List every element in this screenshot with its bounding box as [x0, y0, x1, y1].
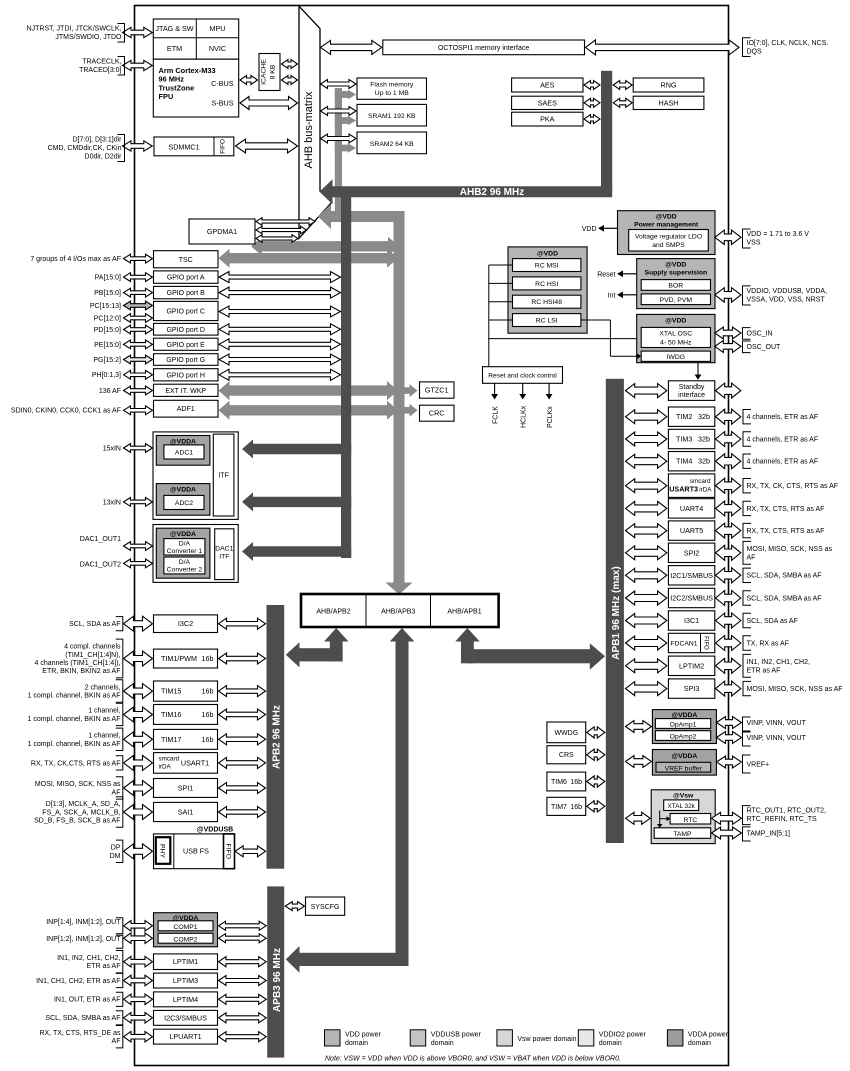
svg-text:VDDA power: VDDA power — [688, 1032, 729, 1039]
svg-text:SCL, SDA, SMBA as AF: SCL, SDA, SMBA as AF — [747, 573, 822, 580]
svg-text:2 channels,: 2 channels, — [85, 684, 121, 691]
svg-text:OSC_IN: OSC_IN — [747, 330, 773, 337]
svg-text:Up to 1 MB: Up to 1 MB — [375, 90, 409, 97]
svg-text:SPI1: SPI1 — [178, 784, 194, 793]
svg-text:SCL, SDA as AF: SCL, SDA as AF — [747, 618, 798, 625]
svg-text:SD_B, FS_B, SCK_B as AF: SD_B, FS_B, SCK_B as AF — [34, 818, 120, 825]
svg-text:ETR, BKIN, BKIN2 as AF: ETR, BKIN, BKIN2 as AF — [42, 668, 120, 675]
svg-text:VSS: VSS — [747, 240, 761, 247]
svg-text:VINP, VINN, VOUT: VINP, VINN, VOUT — [747, 735, 807, 742]
svg-text:XTAL OSC: XTAL OSC — [659, 330, 692, 337]
svg-text:VREF buffer: VREF buffer — [665, 765, 703, 772]
svg-text:GPIO port G: GPIO port G — [166, 357, 205, 364]
svg-text:@VDD: @VDD — [537, 250, 558, 257]
svg-text:Note: VSW = VDD when VDD is a: Note: VSW = VDD when VDD is above VBOR0,… — [325, 1056, 621, 1063]
svg-text:EXT IT. WKP: EXT IT. WKP — [165, 388, 206, 395]
svg-text:interface: interface — [678, 392, 705, 399]
svg-text:DAC1_OUT2: DAC1_OUT2 — [80, 562, 121, 569]
svg-text:SPI3: SPI3 — [684, 684, 700, 693]
svg-text:VREF+: VREF+ — [747, 761, 770, 768]
svg-text:WWDG: WWDG — [554, 730, 578, 737]
svg-text:4 compl. channels: 4 compl. channels — [64, 644, 121, 651]
svg-text:USART3: USART3 — [669, 485, 698, 494]
svg-text:15xIN: 15xIN — [103, 445, 121, 452]
svg-text:AHB/APB2: AHB/APB2 — [316, 609, 350, 616]
svg-text:PA[15:0]: PA[15:0] — [95, 275, 121, 282]
svg-text:Standby: Standby — [679, 384, 705, 391]
svg-text:VINP, VINN, VOUT: VINP, VINN, VOUT — [747, 720, 807, 727]
svg-text:13xIN: 13xIN — [103, 499, 121, 506]
svg-text:16b: 16b — [202, 735, 214, 744]
svg-text:SDIN0, CKIN0, CCK0, CCK1 as AF: SDIN0, CKIN0, CCK0, CCK1 as AF — [11, 408, 121, 415]
svg-text:RC MSI: RC MSI — [535, 263, 559, 270]
svg-text:RX, TX, CTS, RTS as AF: RX, TX, CTS, RTS as AF — [747, 528, 825, 535]
svg-text:TIM1/PWM: TIM1/PWM — [161, 654, 197, 663]
svg-text:136 AF: 136 AF — [99, 388, 121, 395]
svg-text:FIFO: FIFO — [703, 636, 709, 650]
svg-text:D[7:0], D[3:1]dir: D[7:0], D[3:1]dir — [72, 137, 122, 144]
svg-text:JTAG & SW: JTAG & SW — [155, 24, 193, 33]
svg-text:DAC1: DAC1 — [215, 546, 233, 553]
svg-text:SPI2: SPI2 — [684, 548, 700, 557]
svg-text:LPTIM3: LPTIM3 — [173, 976, 198, 985]
svg-text:TIM7: TIM7 — [551, 804, 567, 811]
svg-text:IN1, CH1, CH2, ETR as AF: IN1, CH1, CH2, ETR as AF — [36, 978, 120, 985]
svg-text:AF: AF — [747, 554, 756, 561]
svg-text:1 compl. channel, BKIN as AF: 1 compl. channel, BKIN as AF — [28, 741, 121, 748]
svg-text:BOR: BOR — [668, 283, 683, 290]
svg-text:PB[15:0]: PB[15:0] — [94, 290, 121, 297]
svg-text:AHB/APB3: AHB/APB3 — [381, 609, 415, 616]
svg-text:Reset: Reset — [597, 271, 615, 278]
svg-text:irDA: irDA — [699, 487, 712, 494]
svg-text:PC[15:13]: PC[15:13] — [90, 303, 121, 310]
svg-text:RC HSI: RC HSI — [535, 281, 558, 288]
svg-text:irDA: irDA — [159, 764, 172, 771]
svg-text:TrustZone: TrustZone — [159, 83, 195, 92]
svg-text:TIM4: TIM4 — [676, 457, 692, 466]
svg-text:16b: 16b — [570, 804, 582, 811]
svg-text:VDDUSB power: VDDUSB power — [431, 1032, 482, 1039]
svg-text:NVIC: NVIC — [209, 44, 226, 53]
svg-text:domain: domain — [345, 1040, 368, 1047]
svg-text:PH[0:1,3]: PH[0:1,3] — [92, 372, 121, 379]
svg-text:DM: DM — [110, 853, 121, 860]
svg-text:RTC_OUT1, RTC_OUT2,: RTC_OUT1, RTC_OUT2, — [747, 808, 827, 815]
svg-text:VSSA, VDD, VSS, NRST: VSSA, VDD, VSS, NRST — [747, 297, 826, 304]
svg-text:TIM3: TIM3 — [676, 435, 692, 444]
svg-text:RNG: RNG — [661, 81, 677, 90]
svg-text:GPIO port E: GPIO port E — [167, 342, 205, 349]
svg-text:@VDDA: @VDDA — [170, 438, 196, 445]
svg-text:RTC_REFIN, RTC_TS: RTC_REFIN, RTC_TS — [747, 816, 817, 823]
svg-text:GPIO port A: GPIO port A — [167, 275, 205, 282]
svg-text:SDMMC1: SDMMC1 — [168, 143, 199, 152]
svg-text:SCL, SDA, SMBA as AF: SCL, SDA, SMBA as AF — [747, 595, 822, 602]
svg-text:PCLKx: PCLKx — [547, 406, 554, 428]
svg-text:DQS: DQS — [747, 48, 763, 55]
svg-text:FDCAN1: FDCAN1 — [670, 641, 697, 648]
svg-text:domain: domain — [599, 1040, 622, 1047]
svg-text:PVD, PVM: PVD, PVM — [660, 297, 693, 304]
svg-text:4 channels, ETR as AF: 4 channels, ETR as AF — [747, 436, 819, 443]
svg-text:TAMP_IN[5:1]: TAMP_IN[5:1] — [747, 830, 790, 837]
svg-text:IN1, OUT, ETR as AF: IN1, OUT, ETR as AF — [54, 997, 121, 1004]
svg-text:SRAM1 192 KB: SRAM1 192 KB — [368, 113, 416, 120]
svg-text:AF: AF — [112, 789, 121, 796]
svg-text:PC[12:0]: PC[12:0] — [94, 315, 121, 322]
svg-text:@VDD: @VDD — [665, 318, 686, 325]
svg-text:I3C1: I3C1 — [684, 616, 699, 625]
svg-text:TSC: TSC — [179, 257, 193, 264]
svg-text:RTC: RTC — [683, 817, 697, 824]
svg-text:SYSCFG: SYSCFG — [311, 904, 340, 911]
svg-text:LPTIM2: LPTIM2 — [679, 661, 704, 670]
svg-text:RX, TX, CTS, RTS as AF: RX, TX, CTS, RTS as AF — [747, 506, 825, 513]
svg-text:8 KB: 8 KB — [270, 64, 277, 79]
svg-text:4 channels (TIM1_CH[1:4]),: 4 channels (TIM1_CH[1:4]), — [35, 660, 121, 667]
svg-text:and SMPS: and SMPS — [652, 242, 685, 249]
svg-text:@VDD: @VDD — [656, 214, 677, 221]
svg-text:GPIO port D: GPIO port D — [166, 327, 205, 334]
svg-text:96 MHz: 96 MHz — [159, 75, 185, 84]
svg-text:RX, TX, CK,CTS, RTS as AF: RX, TX, CK,CTS, RTS as AF — [31, 760, 121, 767]
svg-text:COMP1: COMP1 — [173, 924, 197, 931]
svg-text:ETR as AF: ETR as AF — [747, 667, 781, 674]
svg-text:I3C2: I3C2 — [178, 619, 193, 628]
svg-text:32b: 32b — [698, 457, 710, 466]
svg-text:1 compl. channel, BKIN as AF: 1 compl. channel, BKIN as AF — [28, 693, 121, 700]
svg-text:UART5: UART5 — [680, 526, 703, 535]
svg-text:PKA: PKA — [540, 115, 555, 124]
svg-text:Arm Cortex-M33: Arm Cortex-M33 — [159, 66, 216, 75]
svg-text:PD[15:0]: PD[15:0] — [94, 327, 121, 334]
svg-text:GPIO port B: GPIO port B — [167, 290, 205, 297]
svg-text:VDD = 1.71 to 3.6 V: VDD = 1.71 to 3.6 V — [747, 231, 810, 238]
svg-text:ADF1: ADF1 — [177, 406, 195, 413]
svg-text:DAC1_OUT1: DAC1_OUT1 — [80, 536, 121, 543]
svg-text:I2C2/SMBUS: I2C2/SMBUS — [670, 594, 713, 603]
svg-text:AHB bus-matrix: AHB bus-matrix — [303, 91, 315, 169]
svg-text:JTMS/SWDIO, JTDO: JTMS/SWDIO, JTDO — [55, 34, 122, 41]
svg-text:ADC1: ADC1 — [175, 450, 193, 457]
svg-text:Vsw power domain: Vsw power domain — [517, 1036, 576, 1043]
svg-text:GPDMA1: GPDMA1 — [207, 227, 237, 236]
svg-text:SRAM2 64 KB: SRAM2 64 KB — [370, 141, 414, 148]
svg-text:Int: Int — [608, 292, 616, 299]
svg-text:APB2 96 MHz: APB2 96 MHz — [272, 705, 283, 769]
svg-text:1 channel,: 1 channel, — [88, 733, 120, 740]
svg-text:4 channels, ETR as AF: 4 channels, ETR as AF — [747, 414, 819, 421]
svg-text:IN1, IN2, CH1, CH2,: IN1, IN2, CH1, CH2, — [747, 659, 810, 666]
svg-text:Reset and clock control: Reset and clock control — [488, 373, 557, 380]
svg-text:FCLK: FCLK — [493, 406, 500, 424]
svg-text:MPU: MPU — [210, 24, 226, 33]
svg-text:LPTIM1: LPTIM1 — [173, 957, 198, 966]
svg-text:@VDDA: @VDDA — [170, 531, 196, 538]
svg-text:1 channel,: 1 channel, — [88, 708, 120, 715]
svg-text:@VDD: @VDD — [665, 262, 686, 269]
svg-text:PHY: PHY — [159, 844, 166, 858]
svg-text:COMP2: COMP2 — [173, 936, 197, 943]
svg-text:SAES: SAES — [538, 98, 557, 107]
svg-text:ICACHE: ICACHE — [261, 59, 268, 85]
svg-text:1 compl. channel, BKIN as AF: 1 compl. channel, BKIN as AF — [28, 716, 121, 723]
svg-text:domain: domain — [431, 1040, 454, 1047]
svg-text:TAMP: TAMP — [673, 831, 692, 838]
svg-text:domain: domain — [688, 1040, 711, 1047]
svg-text:PG[15:2]: PG[15:2] — [93, 357, 121, 364]
svg-text:I2C3/SMBUS: I2C3/SMBUS — [164, 1013, 207, 1022]
svg-text:IN1, IN2, CH1, CH2,: IN1, IN2, CH1, CH2, — [57, 955, 120, 962]
svg-text:AF: AF — [112, 1038, 121, 1045]
svg-text:PE[15:0]: PE[15:0] — [94, 342, 121, 349]
svg-text:RC LSI: RC LSI — [536, 318, 558, 325]
svg-text:@VDDA: @VDDA — [170, 486, 196, 493]
svg-text:FS_A, SCK_A, MCLK_B,: FS_A, SCK_A, MCLK_B, — [42, 809, 120, 816]
svg-text:@Vsw: @Vsw — [673, 793, 694, 800]
svg-text:XTAL 32k: XTAL 32k — [668, 803, 696, 810]
svg-text:ETM: ETM — [167, 44, 182, 53]
svg-text:TRACECLK,: TRACECLK, — [82, 59, 121, 66]
svg-text:LPUART1: LPUART1 — [169, 1032, 201, 1041]
svg-text:D/A: D/A — [179, 540, 191, 547]
svg-text:TIM2: TIM2 — [676, 412, 692, 421]
svg-text:OpAmp2: OpAmp2 — [670, 734, 697, 741]
svg-text:smcard: smcard — [159, 756, 180, 763]
svg-text:AHB2 96 MHz: AHB2 96 MHz — [460, 187, 524, 198]
svg-text:CRC: CRC — [429, 409, 445, 418]
svg-text:32b: 32b — [698, 412, 710, 421]
svg-text:4- 50 MHz: 4- 50 MHz — [660, 339, 692, 346]
svg-text:Converter 1: Converter 1 — [167, 548, 203, 555]
svg-text:TRACED[3:0]: TRACED[3:0] — [79, 67, 121, 74]
svg-text:S-BUS: S-BUS — [212, 99, 234, 108]
svg-text:ADC2: ADC2 — [175, 500, 193, 507]
svg-text:SCL, SDA as AF: SCL, SDA as AF — [69, 621, 120, 628]
svg-text:HASH: HASH — [659, 98, 679, 107]
svg-text:FPU: FPU — [159, 92, 174, 101]
svg-text:ETR as AF: ETR as AF — [87, 963, 121, 970]
svg-text:@VDDA: @VDDA — [671, 753, 697, 760]
svg-text:16b: 16b — [202, 687, 214, 696]
svg-text:MOSI, MISO, SCK, NSS as: MOSI, MISO, SCK, NSS as — [35, 781, 121, 788]
svg-text:UART4: UART4 — [680, 504, 703, 513]
svg-text:OSC_OUT: OSC_OUT — [747, 344, 782, 351]
svg-text:16b: 16b — [202, 710, 214, 719]
svg-text:GPIO port H: GPIO port H — [166, 372, 205, 379]
svg-text:APB1 96 MHz (max): APB1 96 MHz (max) — [611, 566, 622, 659]
svg-text:GPIO port C: GPIO port C — [166, 309, 205, 316]
svg-text:VDDIO2 power: VDDIO2 power — [599, 1032, 647, 1039]
svg-text:GTZC1: GTZC1 — [425, 386, 449, 395]
svg-text:NJTRST, JTDI, JTCK/SWCLK,: NJTRST, JTDI, JTCK/SWCLK, — [27, 26, 122, 33]
svg-text:C-BUS: C-BUS — [211, 79, 234, 88]
svg-text:Voltage regulator LDO: Voltage regulator LDO — [635, 233, 702, 240]
svg-text:@VDDUSB: @VDDUSB — [197, 827, 233, 834]
svg-text:Converter 2: Converter 2 — [167, 566, 203, 573]
svg-text:VDD: VDD — [582, 226, 597, 233]
svg-text:@VDDA: @VDDA — [671, 712, 697, 719]
svg-text:AES: AES — [540, 81, 555, 90]
svg-text:VDD power: VDD power — [345, 1032, 381, 1039]
svg-text:SAI1: SAI1 — [178, 808, 194, 817]
svg-text:AHB/APB1: AHB/APB1 — [447, 609, 481, 616]
svg-text:(TIM1_CH[1:4]N),: (TIM1_CH[1:4]N), — [65, 652, 120, 659]
svg-text:HCLKx: HCLKx — [521, 405, 528, 428]
svg-text:LPTIM4: LPTIM4 — [173, 995, 198, 1004]
svg-text:IO[7:0], CLK, NCLK, NCS.: IO[7:0], CLK, NCLK, NCS. — [747, 40, 829, 47]
svg-text:MOSI, MISO, SCK, NSS as: MOSI, MISO, SCK, NSS as — [747, 546, 833, 553]
svg-text:Flash memory: Flash memory — [370, 81, 414, 88]
svg-text:7 groups of 4 I/Os max as AF: 7 groups of 4 I/Os max as AF — [30, 256, 121, 263]
svg-text:USB FS: USB FS — [183, 847, 209, 856]
svg-text:CMD, CMDdir,CK, CKin: CMD, CMDdir,CK, CKin — [48, 145, 122, 152]
svg-text:TIM16: TIM16 — [161, 710, 181, 719]
svg-text:MOSI, MISO, SCK, NSS as AF: MOSI, MISO, SCK, NSS as AF — [747, 686, 843, 693]
svg-text:I2C1/SMBUS: I2C1/SMBUS — [670, 571, 713, 580]
svg-text:4 channels, ETR as AF: 4 channels, ETR as AF — [747, 459, 819, 466]
svg-text:ITF: ITF — [219, 554, 229, 561]
svg-text:CRS: CRS — [559, 752, 574, 759]
svg-text:Power management: Power management — [634, 222, 699, 229]
svg-text:OCTOSPI1 memory interface: OCTOSPI1 memory interface — [438, 45, 529, 52]
svg-text:FIFO: FIFO — [220, 139, 227, 154]
svg-text:ITF: ITF — [218, 473, 229, 480]
svg-text:16b: 16b — [202, 654, 214, 663]
svg-text:D0dir, D2dir: D0dir, D2dir — [85, 154, 123, 161]
svg-text:APB3 96 MHz: APB3 96 MHz — [272, 948, 283, 1012]
svg-text:RX, TX, CTS, RTS_DE as: RX, TX, CTS, RTS_DE as — [39, 1030, 121, 1037]
svg-text:TIM15: TIM15 — [161, 687, 181, 696]
svg-text:RC HSI48: RC HSI48 — [531, 299, 562, 306]
svg-text:INP[1:2], INM[1:2], OUT: INP[1:2], INM[1:2], OUT — [46, 936, 121, 943]
svg-text:USART1: USART1 — [181, 758, 209, 767]
svg-text:SCL, SDA, SMBA as AF: SCL, SDA, SMBA as AF — [45, 1015, 120, 1022]
svg-text:OpAmp1: OpAmp1 — [670, 722, 697, 729]
svg-text:D[1:3], MCLK_A, SD_A,: D[1:3], MCLK_A, SD_A, — [46, 801, 121, 808]
svg-text:INP[1:4], INM[1:2], OUT: INP[1:4], INM[1:2], OUT — [46, 919, 121, 926]
svg-text:TIM17: TIM17 — [161, 735, 181, 744]
svg-text:FIFO: FIFO — [225, 844, 232, 859]
svg-text:RX, TX, CK, CTS, RTS as AF: RX, TX, CK, CTS, RTS as AF — [747, 483, 839, 490]
svg-text:16b: 16b — [570, 779, 582, 786]
svg-text:DP: DP — [111, 845, 121, 852]
svg-text:32b: 32b — [698, 435, 710, 444]
svg-text:Supply supervision: Supply supervision — [644, 270, 707, 277]
svg-text:D/A: D/A — [179, 559, 191, 566]
svg-text:TIM6: TIM6 — [551, 779, 567, 786]
svg-text:TX, RX as AF: TX, RX as AF — [747, 640, 789, 647]
svg-text:IWDG: IWDG — [667, 354, 686, 361]
svg-text:VDDIO, VDDUSB, VDDA,: VDDIO, VDDUSB, VDDA, — [747, 288, 828, 295]
